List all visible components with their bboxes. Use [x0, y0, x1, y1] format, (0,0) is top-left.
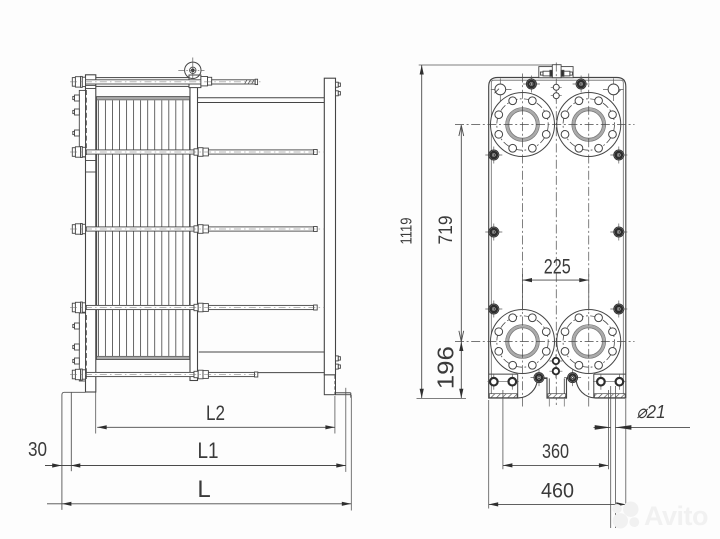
svg-text:30: 30 [28, 439, 47, 461]
svg-text:Avito: Avito [644, 501, 708, 531]
svg-text:L: L [197, 476, 210, 503]
svg-text:⌀21: ⌀21 [637, 401, 666, 422]
svg-text:L1: L1 [198, 438, 219, 463]
svg-text:460: 460 [541, 479, 574, 503]
svg-text:1119: 1119 [398, 218, 415, 245]
svg-text:225: 225 [544, 256, 571, 279]
svg-text:719: 719 [436, 216, 457, 245]
svg-text:360: 360 [542, 441, 569, 463]
svg-text:196: 196 [433, 346, 459, 389]
svg-text:L2: L2 [206, 402, 225, 425]
